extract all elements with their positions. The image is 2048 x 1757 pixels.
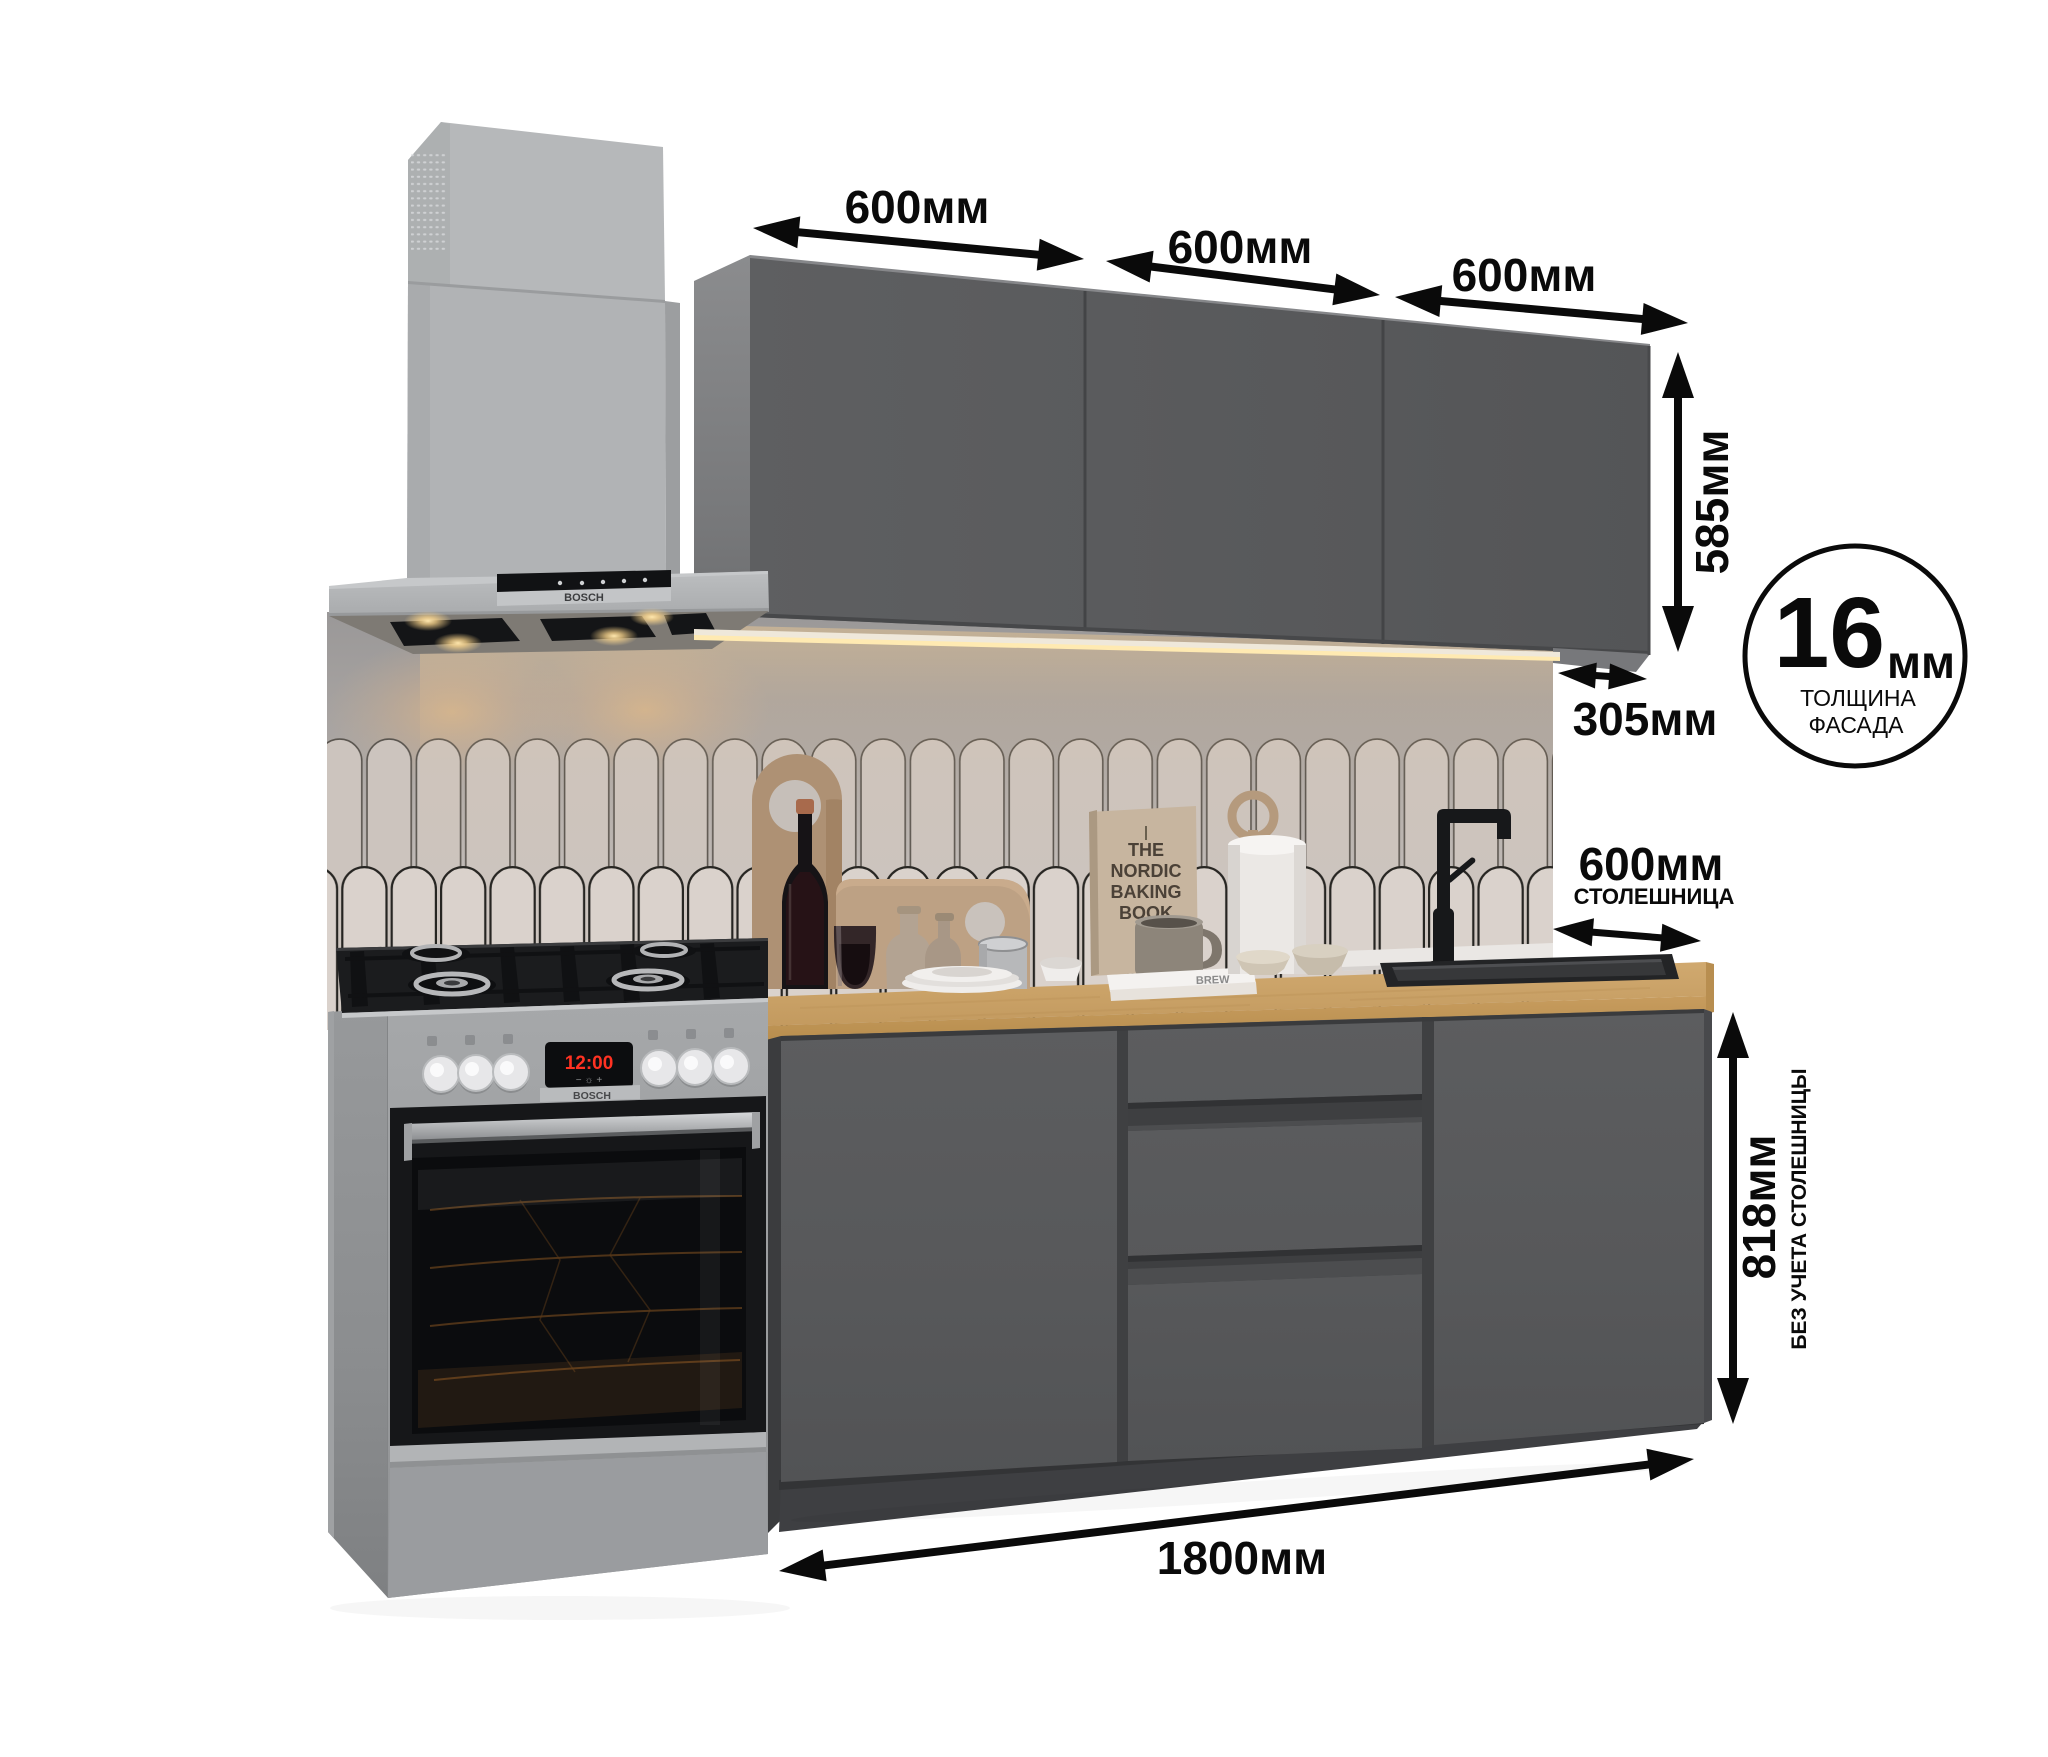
svg-text:BOSCH: BOSCH bbox=[573, 1090, 611, 1102]
svg-text:1800мм: 1800мм bbox=[1157, 1532, 1327, 1584]
svg-text:600мм: 600мм bbox=[1579, 838, 1724, 890]
svg-text:600мм: 600мм bbox=[1452, 249, 1597, 301]
svg-text:СТОЛЕШНИЦА: СТОЛЕШНИЦА bbox=[1574, 884, 1735, 909]
svg-text:ФАСАДА: ФАСАДА bbox=[1809, 712, 1905, 738]
svg-text:BOSCH: BOSCH bbox=[564, 592, 604, 604]
svg-text:600мм: 600мм bbox=[1168, 221, 1313, 273]
svg-text:BREW: BREW bbox=[1196, 974, 1231, 987]
svg-text:THE: THE bbox=[1128, 840, 1164, 860]
svg-text:12:00: 12:00 bbox=[565, 1053, 614, 1074]
svg-text:БЕЗ УЧЕТА СТОЛЕШНИЦЫ: БЕЗ УЧЕТА СТОЛЕШНИЦЫ bbox=[1788, 1068, 1811, 1349]
svg-text:16: 16 bbox=[1774, 577, 1885, 689]
svg-text:600мм: 600мм bbox=[845, 181, 990, 233]
svg-text:NORDIC: NORDIC bbox=[1111, 861, 1182, 881]
svg-text:ТОЛЩИНА: ТОЛЩИНА bbox=[1800, 685, 1916, 711]
svg-text:мм: мм bbox=[1887, 636, 1955, 688]
svg-text:305мм: 305мм bbox=[1573, 693, 1718, 745]
svg-text:585мм: 585мм bbox=[1686, 430, 1738, 575]
svg-text:BAKING: BAKING bbox=[1111, 882, 1182, 902]
svg-text:− ☼ +: − ☼ + bbox=[576, 1075, 603, 1086]
svg-text:818мм: 818мм bbox=[1733, 1135, 1785, 1280]
